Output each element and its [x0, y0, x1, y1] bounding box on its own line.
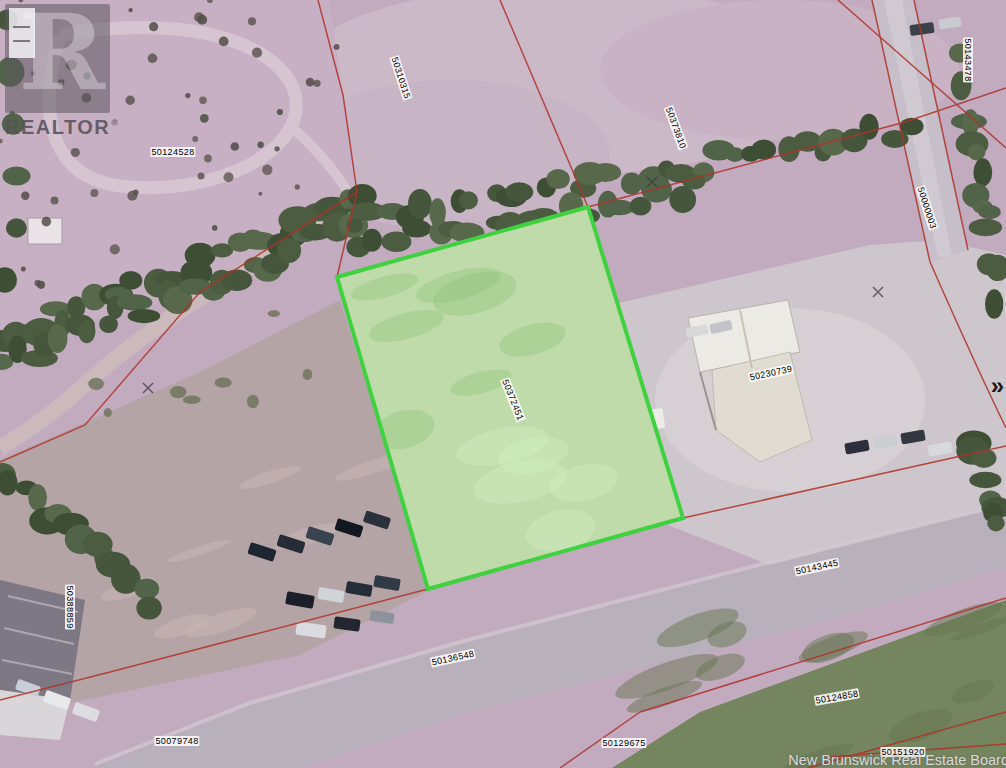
parcel-label: 50124528: [150, 147, 195, 157]
aerial-map: 5012452850310315503738105014347850000003…: [0, 0, 1006, 768]
realtor-logo-tab: [9, 8, 35, 58]
parcel-label: 50230739: [748, 363, 794, 382]
parcel-label: 50000003: [915, 185, 938, 231]
parcel-labels-layer: 5012452850310315503738105014347850000003…: [0, 0, 1006, 768]
realtor-watermark: R REALTOR®: [5, 4, 119, 139]
parcel-label: 50310315: [389, 55, 412, 101]
parcel-label: 50143445: [794, 557, 840, 576]
realtor-wordmark: REALTOR®: [5, 116, 119, 139]
parcel-label: 50136548: [430, 648, 476, 667]
registered-symbol: ®: [111, 118, 119, 128]
realtor-logo-icon: R: [5, 4, 110, 113]
parcel-label: 50372451: [500, 377, 526, 423]
board-attribution-watermark: New Brunswick Real Estate Board: [788, 752, 1006, 768]
parcel-label: 50143478: [963, 37, 973, 82]
parcel-label: 50373810: [664, 105, 689, 151]
realtor-text: REALTOR: [5, 116, 110, 138]
next-image-chevron-icon[interactable]: »: [991, 374, 1004, 398]
parcel-label: 50124858: [814, 688, 860, 706]
parcel-label: 50388859: [65, 584, 75, 629]
parcel-label: 50079748: [154, 736, 199, 746]
parcel-label: 50129675: [601, 738, 646, 748]
